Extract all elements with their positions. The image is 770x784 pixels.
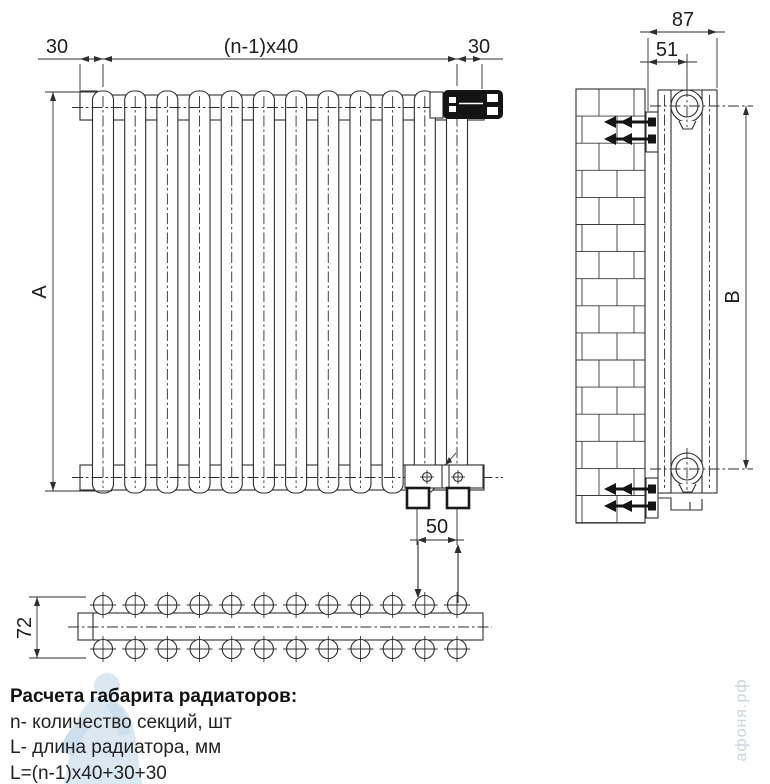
dim-label-depth-87: 87: [672, 9, 694, 31]
dim-label-offset-51: 51: [656, 39, 678, 61]
connection-fitting-right: [447, 488, 469, 508]
wall-anchor: [604, 483, 656, 495]
connection-fitting-left: [407, 488, 429, 508]
dim-label-depth-72: 72: [14, 617, 36, 639]
technical-drawing-canvas: 30 (n-1)x40 30 A 50 72: [0, 0, 770, 784]
legend-title: Расчета габарита радиаторов:: [10, 684, 297, 710]
dim-label-connection-50: 50: [426, 516, 448, 538]
legend-line-sections: n- количество секций, шт: [10, 710, 297, 736]
legend-line-length: L- длина радиатора, мм: [10, 735, 297, 761]
plan-view-radiator: [68, 592, 492, 662]
wall-anchor: [604, 500, 656, 512]
watermark-site-text: афоня.рф: [733, 679, 750, 762]
dim-label-section-pitch: (n-1)x40: [224, 36, 298, 58]
wall-anchors: [604, 116, 656, 512]
dim-label-height-A: A: [29, 285, 51, 299]
legend-line-formula: L=(n-1)x40+30+30: [10, 761, 297, 784]
side-view-radiator: [658, 86, 717, 493]
dim-label-margin-left: 30: [46, 36, 68, 58]
front-view-radiator: [72, 90, 503, 508]
radiator-sections: [93, 91, 468, 493]
dim-label-margin-right: 30: [468, 36, 490, 58]
brick-wall: [576, 89, 645, 523]
wall-anchor: [604, 116, 656, 128]
radiator-dimension-drawing: 30 (n-1)x40 30 A 50 72: [0, 0, 770, 784]
flow-direction-arrows: [415, 541, 462, 603]
dim-label-span-B: B: [722, 290, 744, 303]
legend-block: Расчета габарита радиаторов: n- количест…: [10, 684, 297, 784]
valve-assembly: [430, 90, 503, 119]
